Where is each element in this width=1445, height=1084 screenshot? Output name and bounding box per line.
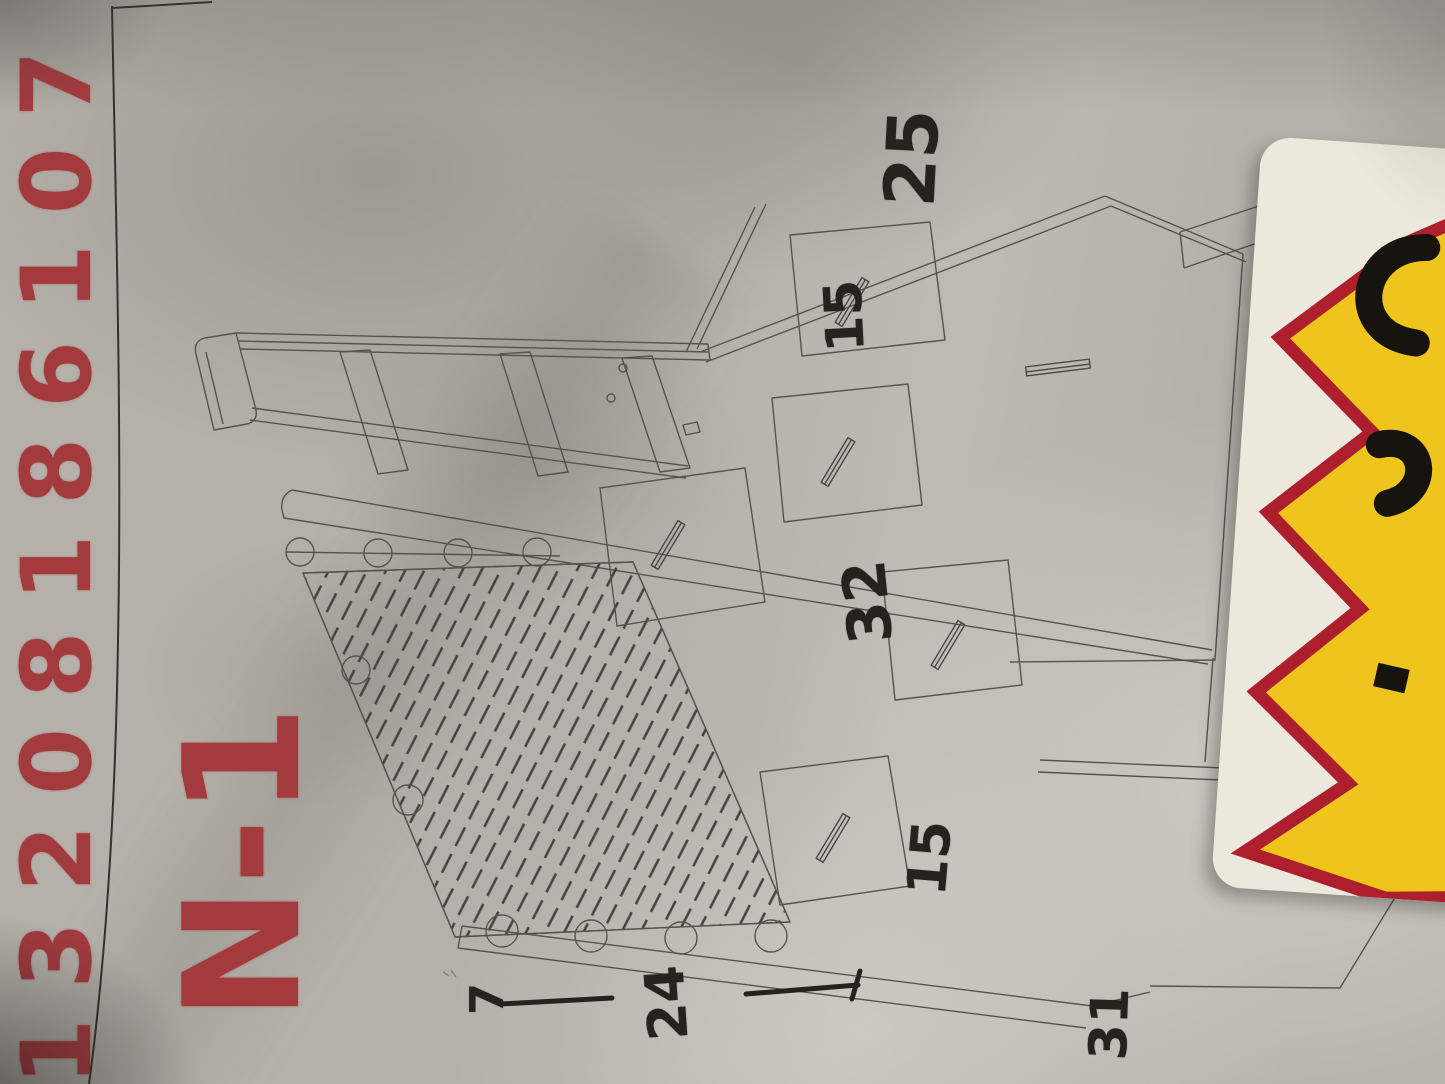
photo-vignette: [0, 0, 1445, 1084]
photo-of-furniture-diagram: 13208186107 N-1 25 15 32 15 7 24 31: [0, 0, 1445, 1084]
